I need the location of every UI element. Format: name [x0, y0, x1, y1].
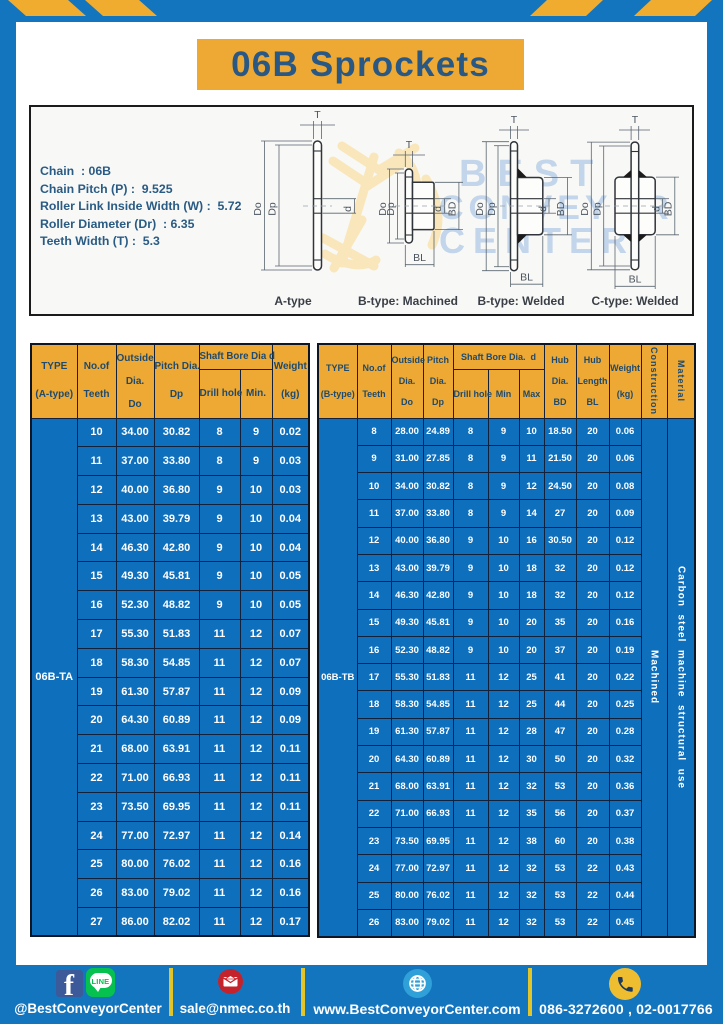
svg-text:T: T — [406, 139, 413, 151]
svg-text:C-type: Welded: C-type: Welded — [591, 294, 678, 308]
svg-text:Do: Do — [474, 202, 486, 216]
svg-text:d: d — [537, 206, 549, 212]
svg-text:A-type: A-type — [274, 294, 312, 308]
svg-text:d: d — [432, 206, 444, 212]
svg-text:T: T — [511, 114, 518, 126]
svg-text:BD: BD — [663, 201, 675, 216]
svg-text:BD: BD — [555, 201, 567, 216]
svg-text:d: d — [651, 206, 663, 212]
svg-text:Do: Do — [252, 202, 264, 216]
svg-text:d: d — [342, 206, 354, 212]
svg-text:BL: BL — [520, 272, 533, 284]
svg-text:Dp: Dp — [267, 202, 279, 216]
svg-text:T: T — [314, 109, 321, 121]
svg-text:BD: BD — [447, 201, 459, 216]
svg-text:T: T — [632, 114, 639, 126]
svg-text:Dp: Dp — [385, 202, 397, 216]
svg-text:B-type: Welded: B-type: Welded — [477, 294, 564, 308]
svg-text:Dp: Dp — [486, 202, 498, 216]
svg-text:BL: BL — [413, 252, 426, 264]
svg-text:Dp: Dp — [592, 202, 604, 216]
svg-text:B-type: Machined: B-type: Machined — [358, 294, 458, 308]
svg-text:Do: Do — [579, 202, 591, 216]
svg-text:BL: BL — [629, 274, 642, 286]
